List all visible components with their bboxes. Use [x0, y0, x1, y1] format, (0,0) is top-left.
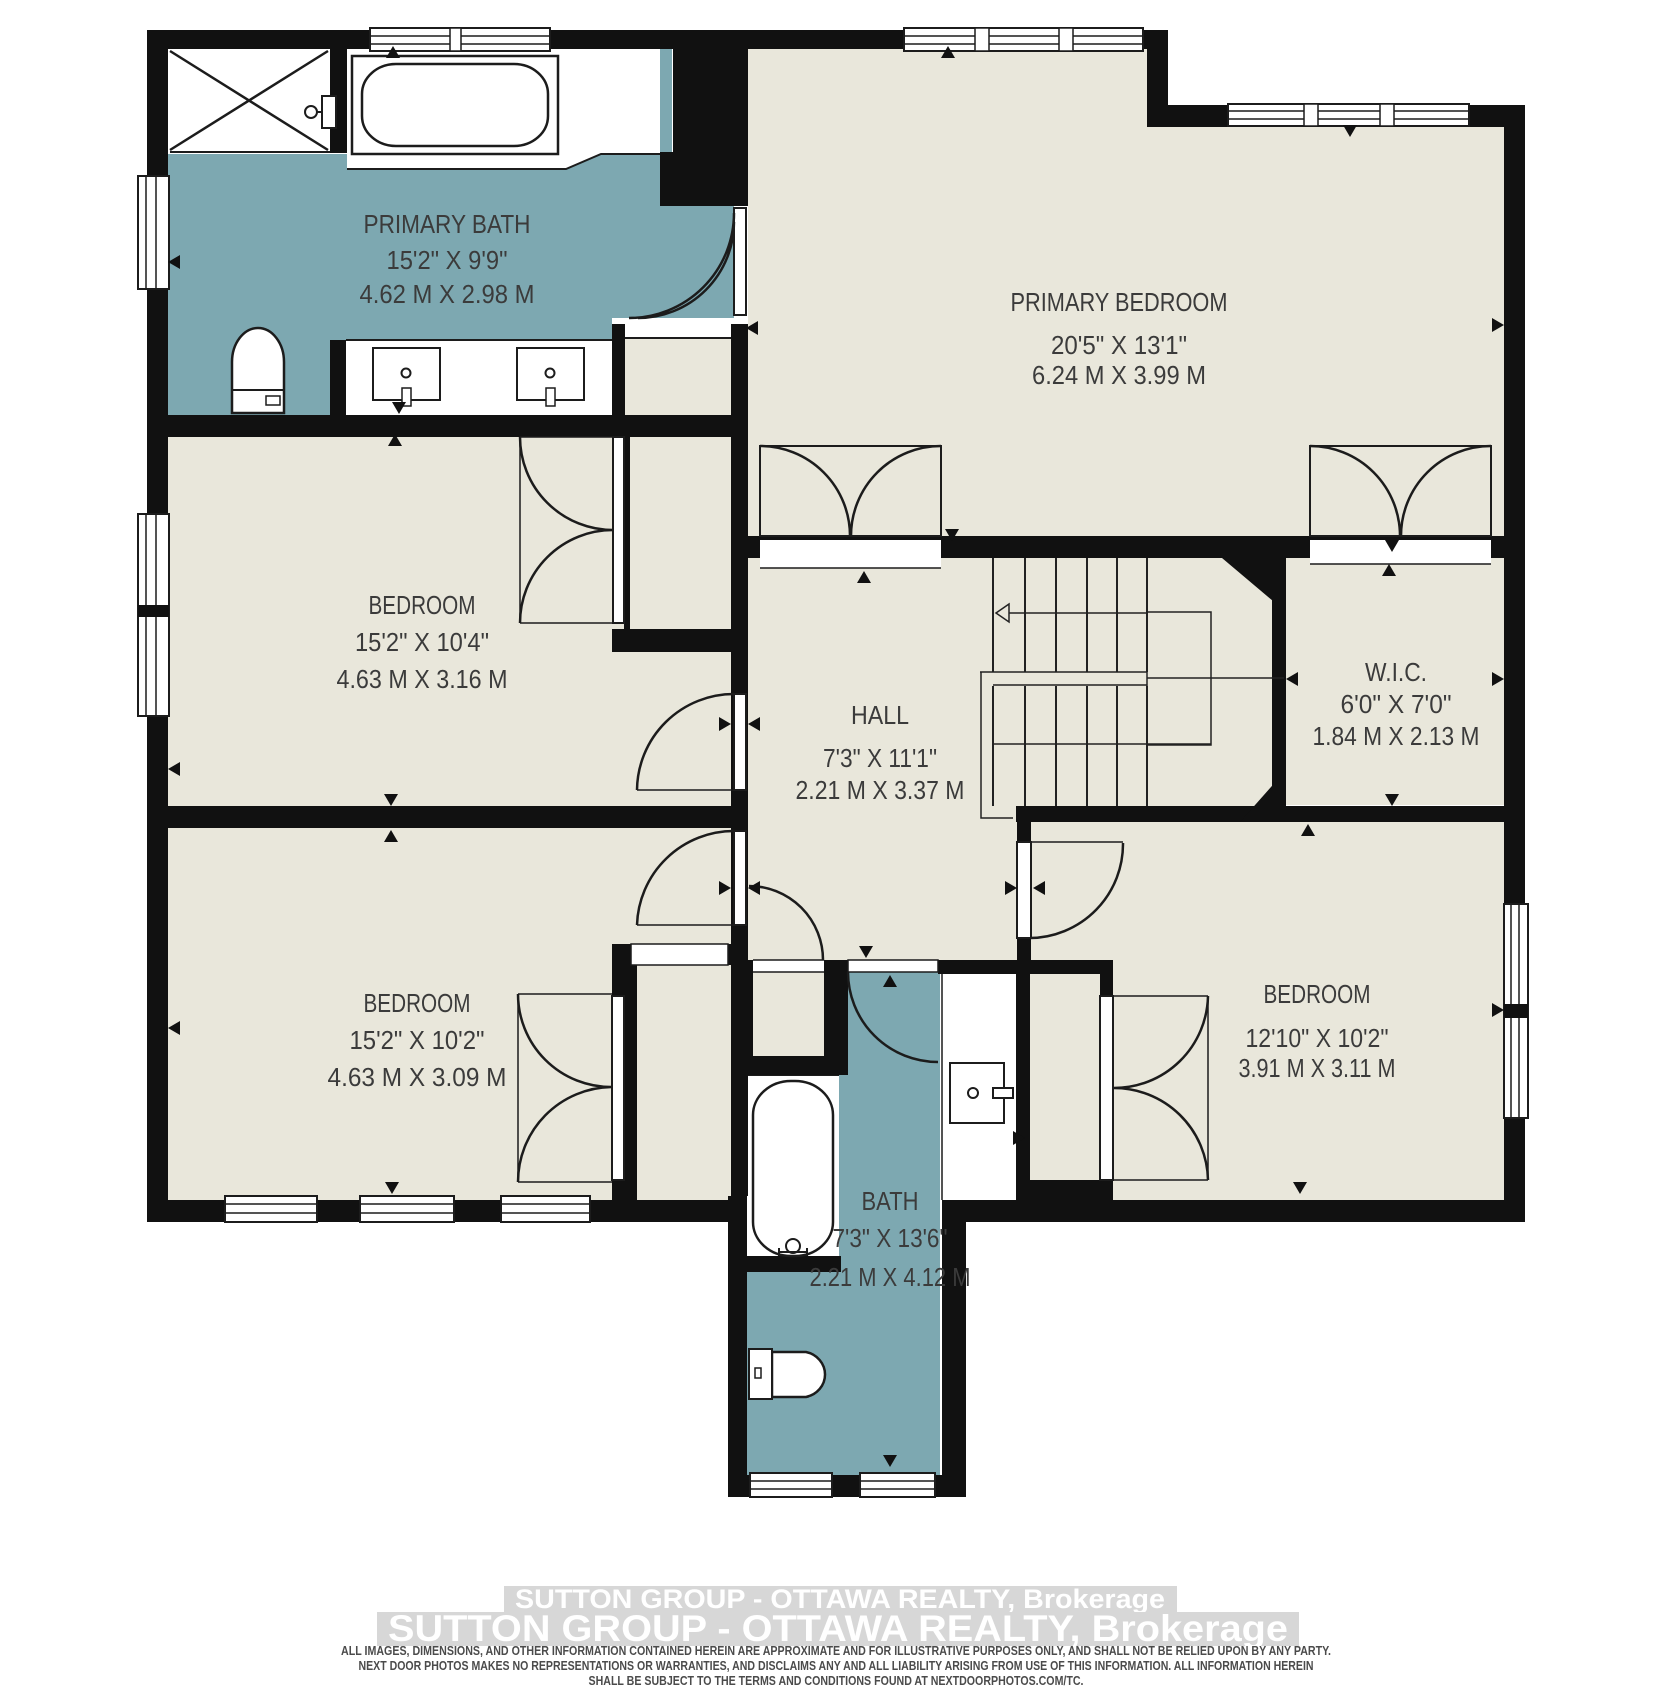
svg-text:BEDROOM: BEDROOM: [1264, 979, 1371, 1009]
svg-text:7'3" X 13'6": 7'3" X 13'6": [833, 1223, 948, 1253]
svg-text:2.21 M X 4.12 M: 2.21 M X 4.12 M: [810, 1262, 971, 1292]
svg-text:2.21 M X 3.37 M: 2.21 M X 3.37 M: [796, 775, 965, 805]
svg-text:3.91 M X 3.11 M: 3.91 M X 3.11 M: [1239, 1053, 1396, 1083]
svg-text:4.63 M X 3.09 M: 4.63 M X 3.09 M: [328, 1062, 507, 1092]
svg-text:7'3" X 11'1": 7'3" X 11'1": [823, 743, 937, 773]
svg-text:1.84 M X 2.13 M: 1.84 M X 2.13 M: [1313, 721, 1480, 751]
svg-text:6.24 M X 3.99 M: 6.24 M X 3.99 M: [1032, 360, 1206, 390]
svg-text:12'10" X 10'2": 12'10" X 10'2": [1246, 1023, 1389, 1053]
svg-text:20'5" X 13'1": 20'5" X 13'1": [1051, 330, 1187, 360]
svg-text:15'2" X 10'4": 15'2" X 10'4": [355, 627, 489, 657]
svg-text:HALL: HALL: [851, 700, 909, 730]
svg-text:15'2" X 10'2": 15'2" X 10'2": [350, 1025, 485, 1055]
svg-text:BEDROOM: BEDROOM: [369, 590, 476, 620]
svg-text:BATH: BATH: [862, 1186, 919, 1216]
svg-text:PRIMARY BEDROOM: PRIMARY BEDROOM: [1011, 287, 1228, 317]
svg-text:6'0" X 7'0": 6'0" X 7'0": [1341, 689, 1452, 719]
svg-text:W.I.C.: W.I.C.: [1365, 657, 1427, 687]
svg-text:ALL IMAGES, DIMENSIONS, AND OT: ALL IMAGES, DIMENSIONS, AND OTHER INFORM…: [341, 1644, 1331, 1658]
svg-text:4.63 M X 3.16 M: 4.63 M X 3.16 M: [337, 664, 508, 694]
svg-text:NEXT DOOR PHOTOS MAKES NO REPR: NEXT DOOR PHOTOS MAKES NO REPRESENTATION…: [359, 1659, 1314, 1673]
svg-text:PRIMARY BATH: PRIMARY BATH: [364, 209, 531, 239]
svg-text:BEDROOM: BEDROOM: [364, 988, 471, 1018]
svg-text:SUTTON GROUP - OTTAWA REALTY,: SUTTON GROUP - OTTAWA REALTY, Brokerage: [388, 1608, 1288, 1649]
svg-text:15'2" X 9'9": 15'2" X 9'9": [387, 245, 508, 275]
svg-text:4.62 M X 2.98 M: 4.62 M X 2.98 M: [360, 279, 535, 309]
svg-text:SHALL BE SUBJECT TO THE TERMS: SHALL BE SUBJECT TO THE TERMS AND CONDIT…: [589, 1674, 1084, 1688]
